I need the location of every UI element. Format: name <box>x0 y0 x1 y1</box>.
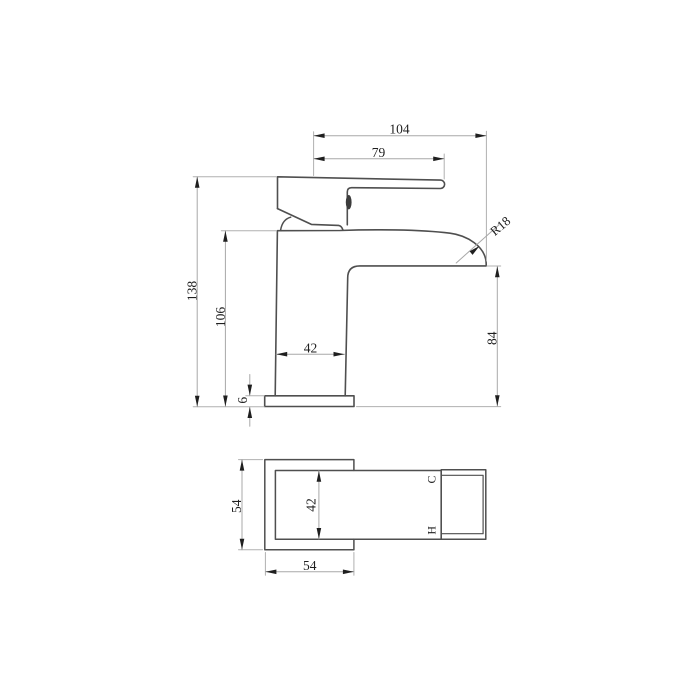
svg-text:106: 106 <box>213 307 228 328</box>
svg-text:79: 79 <box>372 145 386 160</box>
svg-text:42: 42 <box>304 498 319 512</box>
svg-text:54: 54 <box>229 499 244 513</box>
svg-text:104: 104 <box>389 122 410 137</box>
svg-text:54: 54 <box>303 558 317 573</box>
svg-text:84: 84 <box>485 331 500 345</box>
svg-text:H: H <box>424 526 438 535</box>
svg-text:42: 42 <box>304 341 318 356</box>
svg-text:R18: R18 <box>487 213 513 238</box>
svg-text:138: 138 <box>184 281 199 302</box>
svg-text:C: C <box>424 475 438 483</box>
svg-text:6: 6 <box>235 397 250 404</box>
